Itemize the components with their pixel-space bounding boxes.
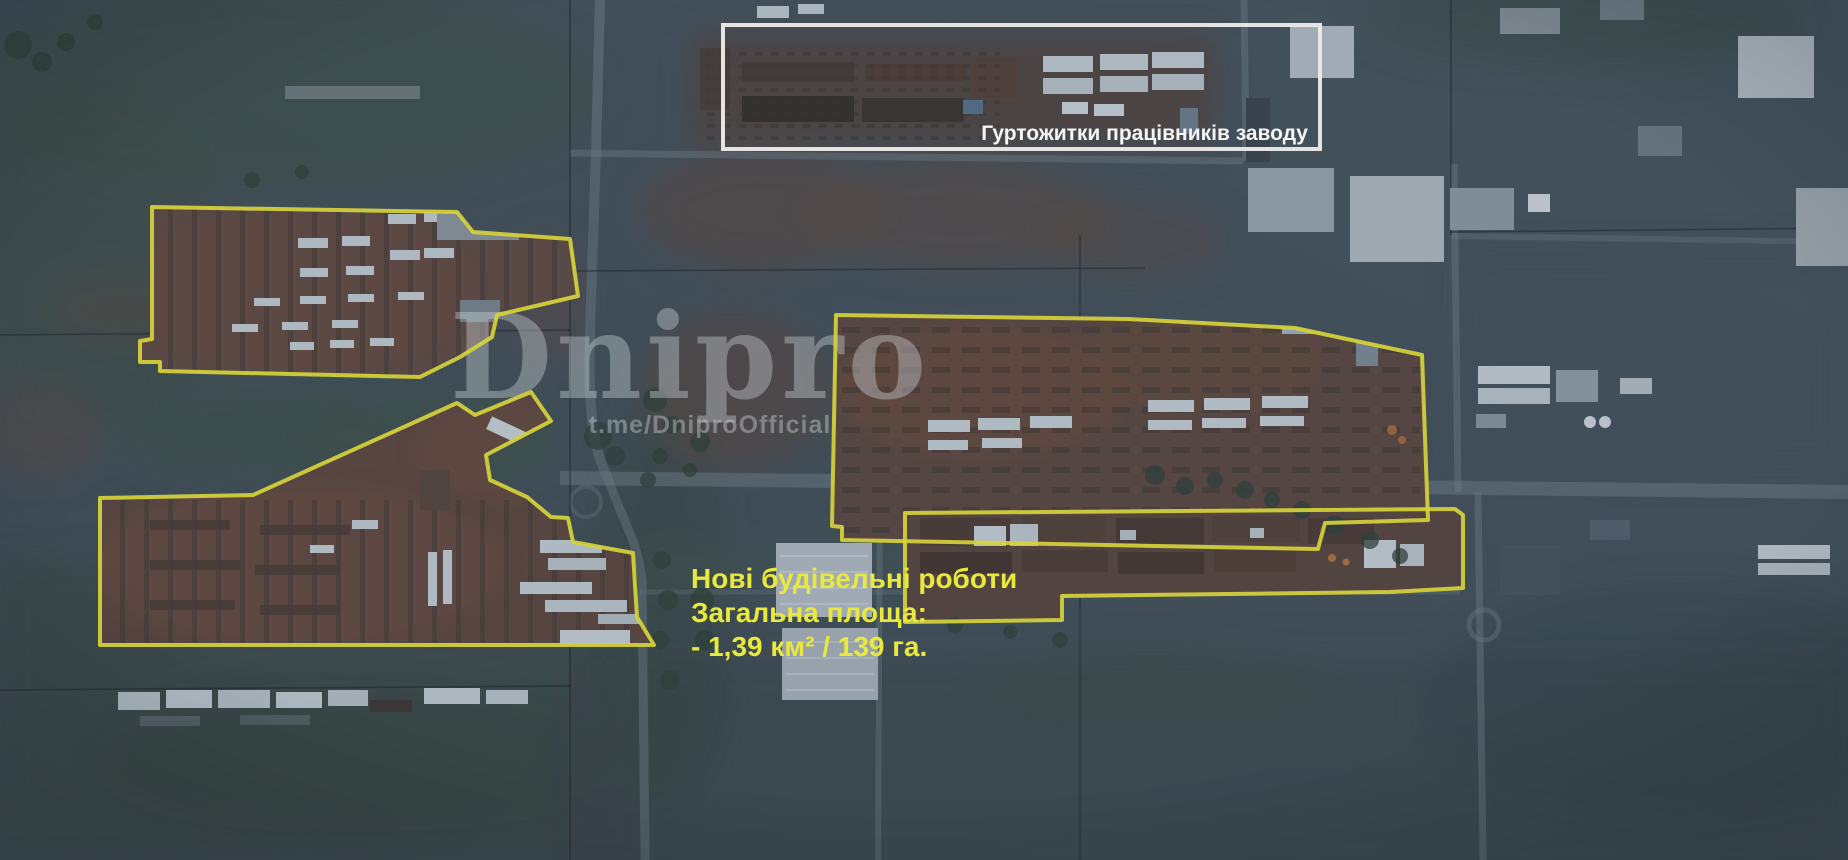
dormitory-label: Гуртожитки працівників заводу <box>981 122 1308 145</box>
vignette <box>0 0 1848 860</box>
area-label-line3: - 1,39 км² / 139 га. <box>691 631 927 662</box>
annotated-satellite-view: Dnipro t.me/DniproOfficial Гуртожитки пр… <box>0 0 1848 860</box>
satellite-map: Dnipro t.me/DniproOfficial Гуртожитки пр… <box>0 0 1848 860</box>
watermark-subtitle: t.me/DniproOfficial <box>589 411 832 439</box>
area-label-line1: Нові будівельні роботи <box>691 563 1017 594</box>
area-label-line2: Загальна площа: <box>691 597 927 628</box>
